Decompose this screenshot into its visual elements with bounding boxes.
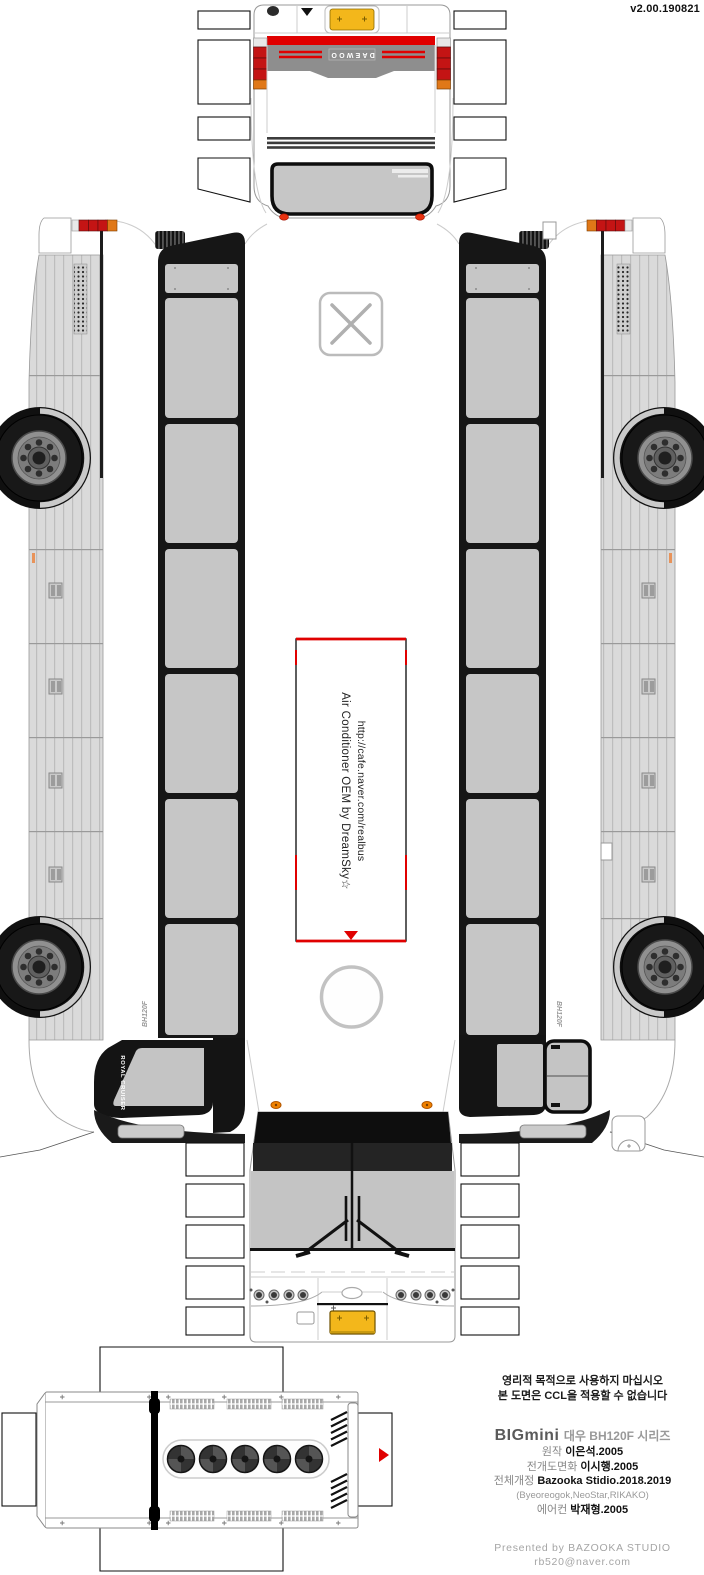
bay-handle xyxy=(642,583,655,598)
ac-flap-top xyxy=(100,1347,283,1392)
fuel-filler xyxy=(601,843,612,860)
side-window xyxy=(165,924,238,1035)
bay-handle xyxy=(49,773,62,788)
side-window xyxy=(165,424,238,543)
left-side-skirt xyxy=(0,218,117,1157)
right-side-skirt xyxy=(587,218,704,1157)
license-notice: 본 도면은 CCL을 적용할 수 없습니다 xyxy=(460,1389,704,1404)
front-wheel-arch-piece xyxy=(612,1116,645,1151)
ac-oem-note: Air Conditioner OEM by DreamSky☆ xyxy=(337,648,352,934)
ac-fan xyxy=(168,1446,195,1473)
front-skirt-trim xyxy=(520,1125,586,1138)
credit-row: (Byeoreogok,NeoStar,RIKAKO) xyxy=(460,1489,704,1503)
glue-flaps-right xyxy=(461,1143,519,1335)
pillar-line xyxy=(100,231,103,478)
side-window xyxy=(466,298,539,418)
front-view-piece xyxy=(186,1112,519,1342)
silhouette-line xyxy=(245,224,267,244)
bay-handle xyxy=(642,867,655,882)
ac-flap-bottom xyxy=(100,1528,283,1571)
ac-unit-piece xyxy=(2,1347,392,1571)
roof-front-taper xyxy=(247,1040,455,1112)
series-name: 대우 BH120F 시리즈 xyxy=(564,1429,671,1443)
rear-reflector-left xyxy=(280,214,289,220)
rear-license-plate xyxy=(325,6,379,33)
side-marker xyxy=(32,553,35,563)
side-window xyxy=(165,549,238,668)
papercraft-drawing xyxy=(0,0,704,1575)
small-fitting xyxy=(543,222,556,239)
presented-by: Presented by BAZOOKA STUDIO xyxy=(460,1541,704,1555)
bay-handle xyxy=(49,679,62,694)
rear-trim-stripes xyxy=(267,137,435,149)
glue-flaps-left xyxy=(198,11,250,202)
corner-light-strip-left xyxy=(72,220,117,231)
rear-red-band xyxy=(267,36,435,45)
right-window-band xyxy=(459,222,556,1038)
version-label: v2.00.190821 xyxy=(600,3,700,15)
front-marker-light xyxy=(422,1102,432,1109)
roof-vent-circle xyxy=(322,967,382,1027)
ac-flap-right xyxy=(358,1413,392,1506)
front-marker-light xyxy=(271,1102,281,1109)
side-window xyxy=(165,298,238,418)
royal-cruiser-label: ROYAL CRUISER xyxy=(116,1053,128,1113)
credits-block: 영리적 목적으로 사용하지 마십시오 본 도면은 CCL을 적용할 수 없습니다… xyxy=(460,1374,704,1569)
rear-reflector-right xyxy=(416,214,425,220)
front-skirt-trim xyxy=(118,1125,184,1138)
model-code-label: BH120F xyxy=(141,993,150,1035)
ac-right-cap xyxy=(348,1403,358,1517)
side-window xyxy=(466,674,539,793)
glue-flaps-right xyxy=(454,11,506,202)
rear-marker-light xyxy=(267,6,279,16)
ac-fan xyxy=(296,1446,323,1473)
front-emblem xyxy=(342,1288,362,1299)
ac-flap-left xyxy=(2,1413,36,1506)
tail-light-left xyxy=(254,38,268,89)
roof-hatch-icon xyxy=(320,293,382,355)
left-window-band xyxy=(155,231,245,1038)
engine-vent-grille xyxy=(617,264,630,334)
silhouette-line xyxy=(437,224,459,244)
daewoo-badge: DAEWOO xyxy=(329,48,375,60)
engine-vent-grille xyxy=(74,264,87,334)
side-window xyxy=(466,424,539,543)
ac-fan xyxy=(232,1446,259,1473)
bay-handle xyxy=(49,867,62,882)
credit-row: 전체개정 Bazooka Stidio.2018.2019 xyxy=(460,1474,704,1489)
a-pillar-left xyxy=(213,1038,245,1133)
side-marker xyxy=(669,553,672,563)
ac-left-cap xyxy=(37,1393,45,1527)
front-license-plate xyxy=(330,1311,375,1334)
front-door xyxy=(545,1041,590,1112)
right-front-corner xyxy=(459,1035,645,1151)
pillar-line xyxy=(601,231,604,478)
tail-light-right xyxy=(437,38,451,89)
corner-light-strip-right xyxy=(587,220,632,231)
ac-vent-grilles-top xyxy=(170,1399,323,1409)
side-window xyxy=(466,799,539,918)
tow-cover xyxy=(297,1312,314,1324)
bay-handle xyxy=(642,679,655,694)
contact-email: rb520@naver.com xyxy=(460,1555,704,1569)
rear-cap-corner xyxy=(39,218,71,253)
ac-fan xyxy=(200,1446,227,1473)
bumper-corner-silhouette xyxy=(29,1040,94,1132)
credit-row: 원작 이은석.2005 xyxy=(460,1445,704,1460)
side-window xyxy=(165,799,238,918)
papercraft-sheet: v2.00.190821 DAEWOO ROYAL CRUISER BH120F… xyxy=(0,0,704,1575)
bay-handle xyxy=(642,773,655,788)
bigmini-logo: BIGmini xyxy=(495,1427,560,1444)
ac-fan xyxy=(264,1446,291,1473)
side-window xyxy=(466,924,539,1035)
front-window-right xyxy=(497,1044,543,1107)
license-notice: 영리적 목적으로 사용하지 마십시오 xyxy=(460,1374,704,1389)
series-title: BIGmini 대우 BH120F 시리즈 xyxy=(460,1427,704,1445)
windshield-visor xyxy=(254,1112,451,1143)
ac-vent-grilles-bottom xyxy=(170,1511,323,1521)
rear-view-piece xyxy=(198,5,506,220)
credit-row: 전개도면화 이시행.2005 xyxy=(460,1460,704,1475)
bumper-center-line xyxy=(317,1303,388,1305)
side-window xyxy=(165,674,238,793)
cut-line xyxy=(0,1132,94,1157)
bay-handle xyxy=(49,583,62,598)
side-window xyxy=(466,549,539,668)
ac-oem-url: http://cafe.naver.com/realbus xyxy=(354,652,368,930)
rear-cap-corner xyxy=(633,218,665,253)
glue-flaps-left xyxy=(186,1143,244,1335)
main-body-piece xyxy=(0,218,704,1157)
credit-row: 에어컨 박재형.2005 xyxy=(460,1503,704,1518)
model-code-label: BH120F xyxy=(554,993,563,1035)
